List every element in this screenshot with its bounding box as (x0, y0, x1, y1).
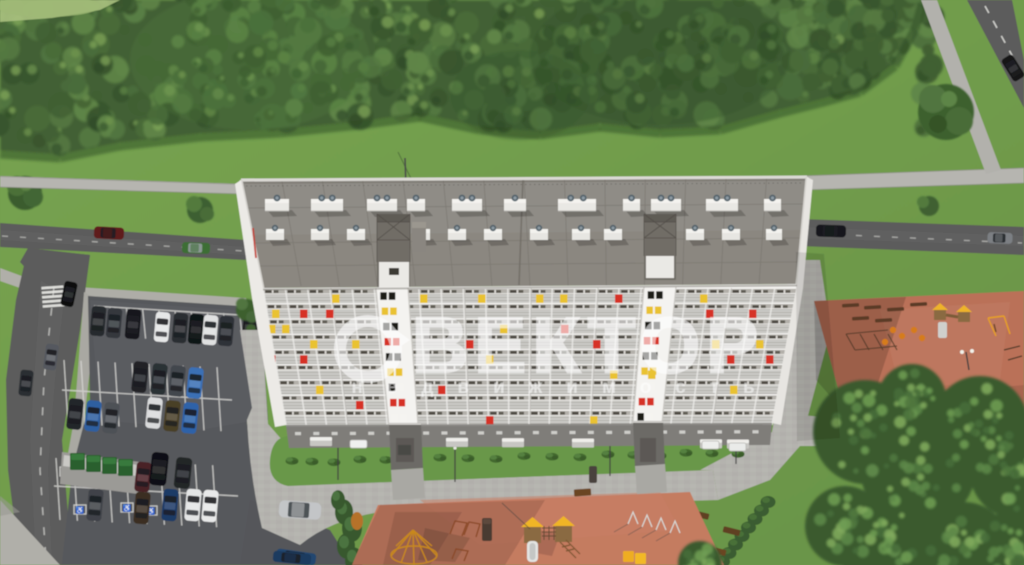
svg-text:♿: ♿ (123, 504, 132, 513)
svg-text:ВЕКТОР: ВЕКТОР (412, 301, 764, 389)
svg-text:♿: ♿ (76, 506, 85, 515)
svg-text:недвижимость: недвижимость (351, 377, 778, 398)
